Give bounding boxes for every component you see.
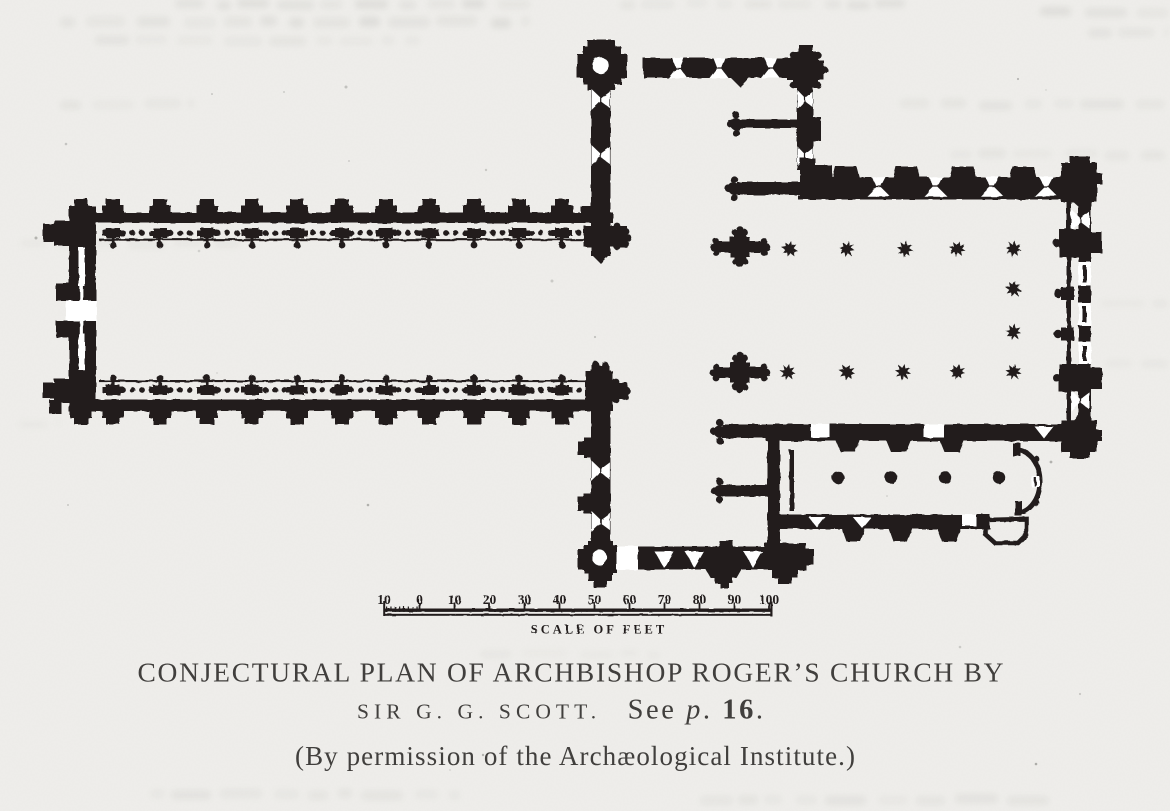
- svg-text:(By permission of the Archæolo: (By permission of the Archæological Inst…: [295, 741, 855, 771]
- svg-text:CONJECTURAL PLAN OF ARCHBISHOP: CONJECTURAL PLAN OF ARCHBISHOP ROGER’S C…: [138, 657, 1004, 688]
- svg-text:SCALE OF FEET: SCALE OF FEET: [531, 623, 667, 637]
- svg-text:SIR G. G. SCOTT. See p. 16.: SIR G. G. SCOTT. See p. 16.: [357, 695, 763, 726]
